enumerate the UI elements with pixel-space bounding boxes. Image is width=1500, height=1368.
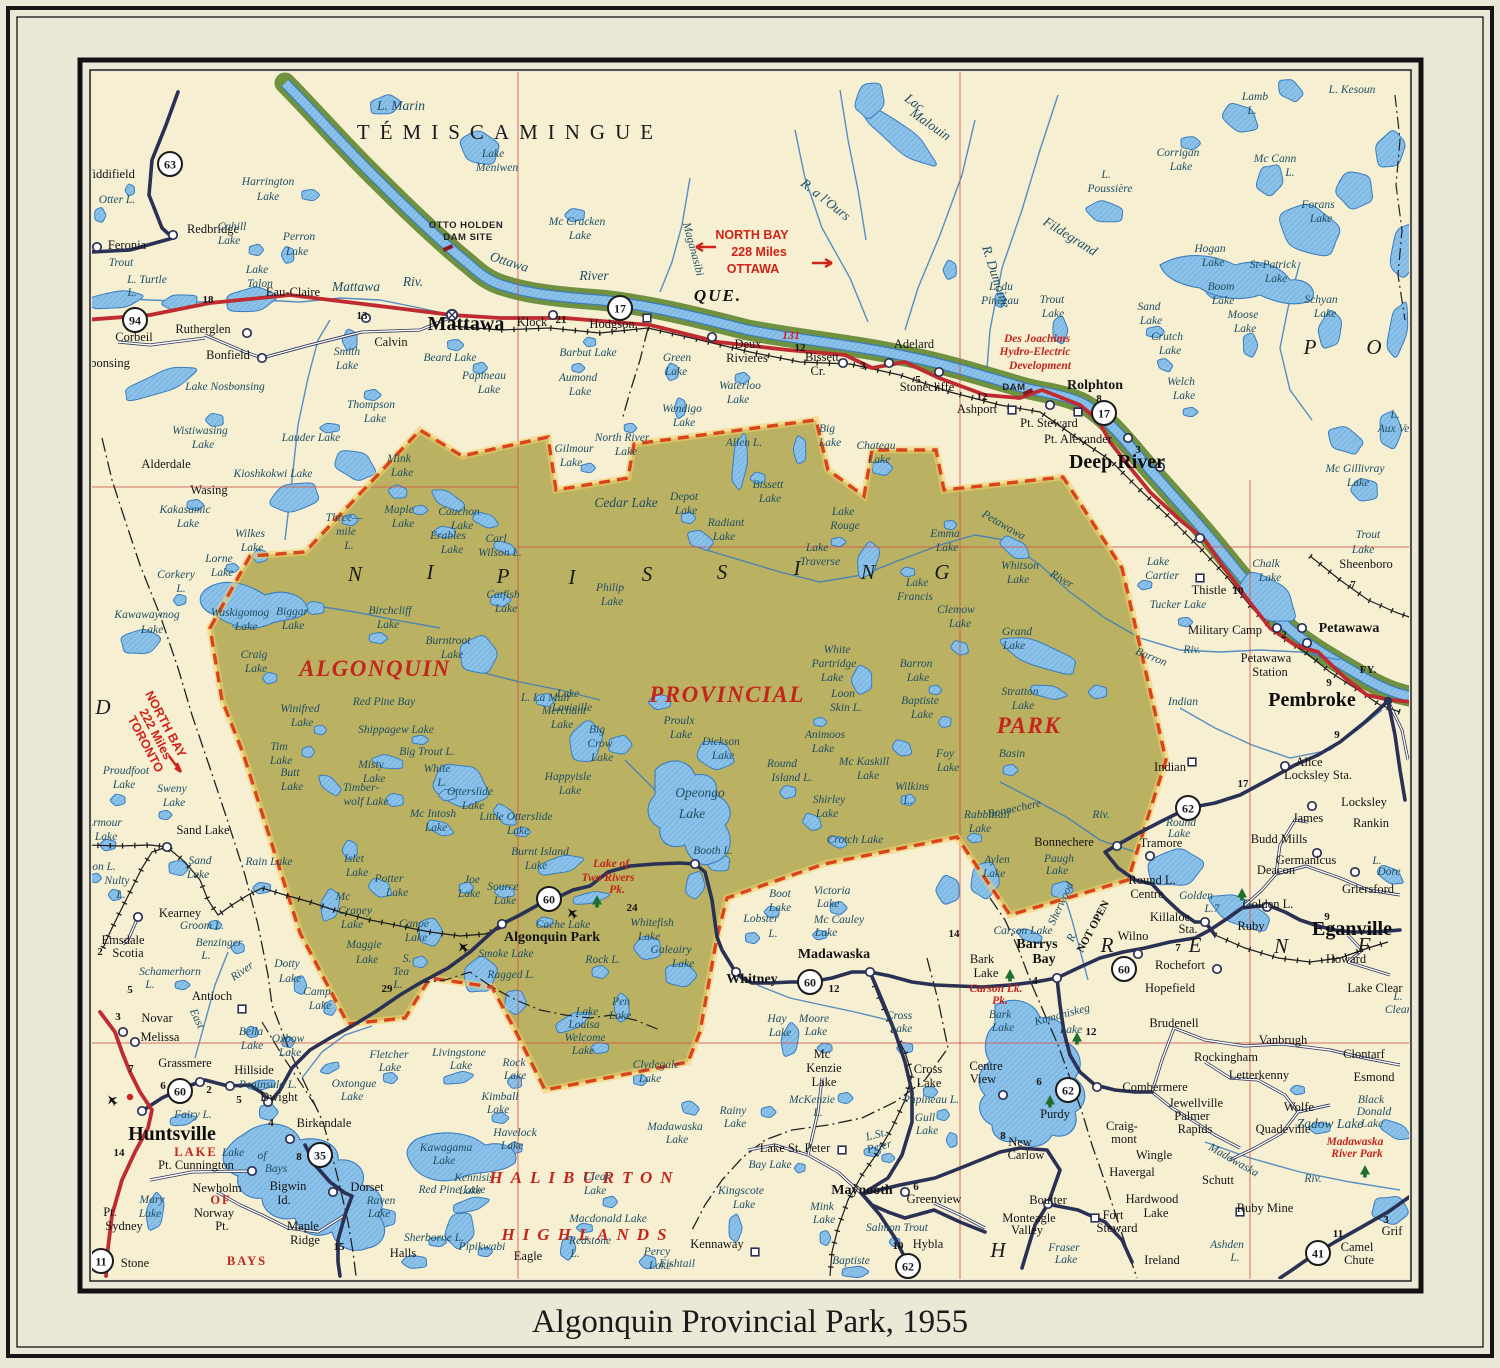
map-label: Lake bbox=[500, 1140, 523, 1152]
map-label: Oxbow bbox=[272, 1033, 305, 1045]
map-label: OTTO HOLDEN bbox=[429, 220, 503, 231]
map-label: 6 bbox=[160, 1080, 166, 1092]
map-label: Lake bbox=[768, 1027, 791, 1039]
map-label: 12 bbox=[829, 983, 841, 995]
map-label: Feronia bbox=[108, 238, 147, 252]
map-label: 14 bbox=[114, 1147, 126, 1159]
map-label: LAKE bbox=[174, 1145, 217, 1159]
map-label: Fairy L. bbox=[173, 1109, 212, 1121]
map-label: Tim bbox=[270, 741, 287, 753]
town-marker-icon bbox=[169, 231, 177, 239]
map-label: Boulter bbox=[1029, 1193, 1067, 1207]
map-label: Lake bbox=[671, 958, 694, 970]
town-marker-icon bbox=[1188, 758, 1196, 766]
map-label: Lake bbox=[1346, 477, 1369, 489]
map-label: Madawaska bbox=[798, 947, 870, 962]
map-label: Lake bbox=[376, 619, 399, 631]
map-label: Lake bbox=[559, 457, 582, 469]
map-label: Emma bbox=[929, 528, 960, 540]
map-label: Victoria bbox=[814, 885, 851, 897]
map-label: L. bbox=[569, 1248, 579, 1260]
map-label: Grand bbox=[1002, 626, 1032, 638]
map-label: Green bbox=[663, 352, 692, 364]
map-label: Lake bbox=[1011, 700, 1034, 712]
town-marker-icon bbox=[248, 1167, 256, 1175]
map-label: Lake bbox=[818, 437, 841, 449]
map-label: White bbox=[824, 644, 851, 656]
map-label: Algonquin Park bbox=[504, 930, 600, 945]
map-label: Stratton bbox=[1001, 686, 1038, 698]
map-label: 2 bbox=[97, 946, 103, 958]
map-label: 13 bbox=[357, 310, 369, 322]
map-label: Valley bbox=[1011, 1223, 1044, 1237]
map-label: Lobster bbox=[742, 913, 779, 925]
map-label: Lake St. Peter bbox=[760, 1141, 831, 1155]
map-label: Shippagew Lake bbox=[358, 724, 434, 736]
map-label: Lake bbox=[1054, 1254, 1077, 1266]
map-label: Station bbox=[1252, 665, 1288, 679]
map-label: BAYS bbox=[227, 1254, 267, 1268]
town-marker-icon bbox=[1093, 1083, 1101, 1091]
map-label: Sand bbox=[1138, 301, 1161, 313]
town-marker-icon bbox=[999, 1091, 1007, 1099]
map-label: Greenview bbox=[907, 1192, 962, 1206]
map-label: Lake bbox=[112, 779, 135, 791]
map-label: Lake bbox=[608, 1010, 631, 1022]
map-label: Lake bbox=[278, 1047, 301, 1059]
map-label: L. bbox=[1284, 167, 1294, 179]
map-label: Hillside bbox=[234, 1063, 274, 1077]
map-label: Mattawa bbox=[331, 279, 380, 294]
map-label: Maple bbox=[287, 1219, 319, 1233]
map-label: Lake bbox=[256, 191, 279, 203]
map-label: Calvin bbox=[374, 335, 408, 349]
map-label: Riv. bbox=[1182, 644, 1200, 656]
town-marker-icon bbox=[119, 1028, 127, 1036]
map-label: Butt bbox=[280, 767, 300, 779]
map-label: 2 bbox=[1281, 629, 1287, 641]
map-label: Ashden bbox=[1209, 1239, 1244, 1251]
map-label: Rankin bbox=[1353, 816, 1390, 830]
map-label: Salmon Trout bbox=[866, 1222, 929, 1234]
map-label: Galeairy bbox=[651, 944, 693, 956]
map-label: 7 bbox=[1175, 942, 1181, 954]
map-label: 12 bbox=[1086, 1026, 1098, 1038]
map-label: Locksley Sta. bbox=[1284, 768, 1352, 782]
svg-text:94: 94 bbox=[129, 314, 141, 328]
map-label: Lake bbox=[1211, 295, 1234, 307]
map-label: Barron bbox=[900, 658, 933, 670]
map-label: DAM SITE bbox=[443, 232, 492, 243]
map-label: Military Camp bbox=[1188, 623, 1262, 637]
town-marker-icon bbox=[238, 1005, 246, 1013]
map-label: Lake bbox=[968, 823, 991, 835]
map-label: Big bbox=[589, 724, 605, 736]
map-label: Rock L. bbox=[584, 954, 620, 966]
map-label: Lake bbox=[385, 887, 408, 899]
map-label: Lake bbox=[590, 752, 613, 764]
map-label: Waskigomog bbox=[211, 607, 270, 619]
map-label: Lake bbox=[906, 672, 929, 684]
map-label: Kennaway bbox=[690, 1237, 744, 1251]
svg-text:60: 60 bbox=[1118, 963, 1130, 977]
town-marker-icon bbox=[866, 968, 874, 976]
map-label: Lake bbox=[936, 762, 959, 774]
map-label: Lake bbox=[568, 230, 591, 242]
map-label: Palmer bbox=[1174, 1109, 1210, 1123]
map-label: Lake bbox=[363, 413, 386, 425]
map-label: Lake bbox=[285, 246, 308, 258]
map-label: 9 bbox=[1334, 729, 1340, 741]
map-label: Lake bbox=[1201, 257, 1224, 269]
map-label: Lake bbox=[1006, 574, 1029, 586]
map-label: Lake bbox=[186, 869, 209, 881]
map-label: Cahill bbox=[218, 221, 247, 233]
map-label: Baptiste bbox=[832, 1255, 870, 1267]
map-label: L. bbox=[436, 777, 446, 789]
map-label: Lake bbox=[1233, 323, 1256, 335]
route-shield: 94 bbox=[123, 308, 147, 332]
map-label: NORTH BAY bbox=[715, 228, 789, 242]
map-label: Lake of bbox=[592, 858, 630, 870]
map-label: Klock bbox=[517, 315, 548, 329]
map-label: OF bbox=[210, 1193, 231, 1207]
map-label: OTTAWA bbox=[727, 262, 780, 276]
town-marker-icon bbox=[163, 843, 171, 851]
map-label: Lake bbox=[1139, 315, 1162, 327]
map-label: 14 bbox=[949, 928, 961, 940]
map-label: Lake bbox=[815, 808, 838, 820]
map-label: Ridge bbox=[290, 1233, 320, 1247]
map-label: Lake bbox=[831, 506, 854, 518]
map-label: Centre bbox=[1130, 887, 1164, 901]
map-caption: Algonquin Provincial Park, 1955 bbox=[0, 1304, 1500, 1341]
map-label: Grif bbox=[1382, 1224, 1404, 1238]
map-label: Lake bbox=[558, 785, 581, 797]
map-label: 9 bbox=[1326, 677, 1332, 689]
map-label: Fraser bbox=[1047, 1242, 1080, 1254]
map-label: Lake bbox=[335, 360, 358, 372]
map-label: Redstone bbox=[568, 1235, 611, 1247]
map-label: Lake bbox=[614, 446, 637, 458]
map-label: Lake bbox=[440, 649, 463, 661]
map-label: Pt. bbox=[215, 1219, 229, 1233]
map-label: Maggie bbox=[345, 939, 381, 951]
map-label: Lake bbox=[477, 384, 500, 396]
map-label: Schamerhorn bbox=[139, 966, 201, 978]
map-label: 5 bbox=[127, 984, 133, 996]
map-label: 228 Miles bbox=[731, 245, 787, 259]
map-label: Bissett bbox=[805, 350, 840, 364]
town-marker-icon bbox=[93, 243, 101, 251]
town-marker-icon bbox=[243, 329, 251, 337]
map-label: Papineau bbox=[461, 370, 506, 382]
map-label: Havelock bbox=[492, 1127, 537, 1139]
map-label: Depot bbox=[669, 491, 699, 503]
map-label: L. du bbox=[988, 281, 1013, 293]
map-label: Golden bbox=[1179, 890, 1213, 902]
map-label: Round bbox=[766, 758, 797, 770]
map-label: Carson Lake bbox=[993, 925, 1052, 937]
map-label: Winifred bbox=[280, 703, 319, 715]
map-label: Locksley bbox=[1341, 795, 1388, 809]
map-label: Lake bbox=[575, 1006, 598, 1018]
svg-text:17: 17 bbox=[614, 302, 626, 316]
map-label: Scotia bbox=[112, 946, 144, 960]
map-label: Booth L. bbox=[693, 845, 733, 857]
map-label: Purdy bbox=[1040, 1107, 1071, 1121]
town-marker-icon bbox=[1113, 842, 1121, 850]
map-label: Petawawa bbox=[1319, 621, 1380, 636]
map-label: Lorne bbox=[204, 553, 232, 565]
map-label: Lake bbox=[494, 603, 517, 615]
map-label: Lake bbox=[424, 822, 447, 834]
map-label: Lake bbox=[1309, 213, 1332, 225]
map-label: Lauder Lake bbox=[281, 432, 340, 444]
map-label: Hodgson bbox=[589, 317, 635, 331]
map-label: R bbox=[1100, 933, 1114, 957]
map-label: Riv. bbox=[1091, 809, 1109, 821]
map-label: Mc Gillivray bbox=[1324, 463, 1385, 475]
map-label: Sherborne L. bbox=[404, 1232, 464, 1244]
map-label: S bbox=[717, 560, 728, 584]
map-label: Groom L. bbox=[180, 920, 224, 932]
map-label: Lake bbox=[991, 1022, 1014, 1034]
map-label: Trout bbox=[1356, 529, 1381, 541]
map-label: Emsdale bbox=[101, 933, 144, 947]
map-label: L. bbox=[1392, 991, 1402, 1003]
map-label: Carlow bbox=[1008, 1148, 1045, 1162]
route-shield: 11 bbox=[89, 1249, 113, 1273]
map-label: Madawaska bbox=[1326, 1136, 1384, 1148]
map-label: Lake bbox=[461, 800, 484, 812]
map-label: Lake bbox=[600, 596, 623, 608]
map-label: PROVINCIAL bbox=[648, 682, 805, 707]
map-label: 29 bbox=[382, 983, 394, 995]
map-label: Ragged L. bbox=[486, 969, 534, 981]
map-label: McKenzie bbox=[788, 1094, 835, 1106]
map-label: Cr. bbox=[811, 364, 826, 378]
map-label: Corbeil bbox=[115, 330, 153, 344]
map-label: Whitefish bbox=[630, 917, 674, 929]
map-label: Waterloo bbox=[719, 380, 761, 392]
map-label: Mink bbox=[809, 1201, 835, 1213]
map-label: Misty bbox=[357, 759, 384, 771]
map-label: mile bbox=[336, 526, 356, 538]
map-label: Rochefort bbox=[1155, 958, 1206, 972]
map-label: Rutherglen bbox=[175, 322, 231, 336]
map-label: Cedar Lake bbox=[594, 495, 657, 510]
map-label: Chalk bbox=[1252, 558, 1280, 570]
map-label: Traverse bbox=[800, 556, 840, 568]
map-label: S. bbox=[403, 953, 412, 965]
map-label: Schyan bbox=[1304, 294, 1337, 306]
map-label: Poussière bbox=[1087, 183, 1133, 195]
map-label: Jewellville bbox=[1169, 1096, 1224, 1110]
map-label: Lake bbox=[571, 1045, 594, 1057]
map-label: L. bbox=[126, 287, 136, 299]
map-label: Combermere bbox=[1122, 1080, 1188, 1094]
map-label: Craig- bbox=[1106, 1119, 1138, 1133]
town-marker-icon bbox=[935, 368, 943, 376]
map-label: Adelard bbox=[894, 337, 935, 351]
svg-text:60: 60 bbox=[543, 893, 555, 907]
map-label: wolf Lake bbox=[343, 796, 388, 808]
map-label: Lake bbox=[390, 467, 413, 479]
map-label: Lake bbox=[340, 919, 363, 931]
map-label: Mc Cracken bbox=[548, 216, 606, 228]
map-label: Pt. bbox=[103, 1205, 117, 1219]
map-label: Ireland bbox=[1144, 1253, 1180, 1267]
map-label: Lake bbox=[290, 717, 313, 729]
map-label: ALGONQUIN bbox=[297, 656, 451, 681]
map-label: L. Kesoun bbox=[1328, 84, 1376, 96]
map-label: River Park bbox=[1330, 1148, 1383, 1160]
map-label: Erables bbox=[429, 530, 466, 542]
map-label: Lake bbox=[245, 264, 268, 276]
map-label: Rolphton bbox=[1067, 378, 1123, 393]
map-label: New bbox=[1008, 1135, 1032, 1149]
map-label: Perron bbox=[282, 231, 315, 243]
map-label: Budd Mills bbox=[1251, 832, 1308, 846]
town-marker-icon bbox=[226, 1082, 234, 1090]
town-marker-icon bbox=[1146, 852, 1154, 860]
map-label: Golden L. bbox=[1243, 897, 1294, 911]
map-label: Percy bbox=[643, 1246, 671, 1258]
map-label: 6 bbox=[913, 1181, 919, 1193]
map-label: Steward bbox=[1097, 1221, 1139, 1235]
route-shield: 60 bbox=[537, 887, 561, 911]
town-marker-icon bbox=[131, 1038, 139, 1046]
map-label: L. Turtle bbox=[126, 274, 167, 286]
map-label: Letterkenny bbox=[1229, 1068, 1290, 1082]
map-label: Lamb bbox=[1241, 91, 1268, 103]
map-label: Wilkins bbox=[895, 781, 929, 793]
map-label: Lake bbox=[391, 518, 414, 530]
map-label: Potter bbox=[374, 873, 404, 885]
map-label: Burntroot bbox=[426, 635, 472, 647]
map-label: Gilmour bbox=[555, 443, 595, 455]
map-label: Red Pine Lake bbox=[417, 1184, 485, 1196]
map-label: Lake bbox=[726, 394, 749, 406]
map-label: Big bbox=[819, 423, 835, 435]
map-label: Pt. Steward bbox=[1020, 416, 1078, 430]
map-label: Lake bbox=[1002, 640, 1025, 652]
map-label: Sheenboro bbox=[1339, 557, 1392, 571]
map-label: Halls bbox=[390, 1246, 417, 1260]
map-label: Mc Cauley bbox=[813, 914, 865, 926]
svg-text:62: 62 bbox=[902, 1260, 914, 1274]
map-label: Wasing bbox=[190, 483, 228, 497]
route-shield: 60 bbox=[168, 1079, 192, 1103]
map-label: Pt. Cunnington bbox=[158, 1158, 234, 1172]
map-label: Harrington bbox=[241, 176, 295, 188]
map-label: Hogan bbox=[1193, 243, 1226, 255]
map-label: 3 bbox=[860, 360, 866, 372]
map-label: L. bbox=[902, 795, 912, 807]
map-label: Corkery bbox=[157, 569, 196, 581]
map-label: Smoke Lake bbox=[478, 948, 533, 960]
town-marker-icon bbox=[1384, 697, 1392, 705]
map-label: Wendigo bbox=[662, 403, 702, 415]
map-label: Island L. bbox=[771, 772, 813, 784]
map-label: Ruby Mine bbox=[1237, 1201, 1294, 1215]
map-label: Lake bbox=[378, 1062, 401, 1074]
map-label: Stone bbox=[121, 1256, 150, 1270]
map-label: Papineau L. bbox=[902, 1094, 959, 1106]
map-label: Mink bbox=[386, 453, 412, 465]
map-label: Dotty bbox=[273, 958, 300, 970]
map-label: Lake bbox=[672, 417, 695, 429]
map-label: Brudenell bbox=[1149, 1016, 1199, 1030]
map-label: Cross bbox=[886, 1010, 913, 1022]
map-label: Lake bbox=[889, 1023, 912, 1035]
map-label: Lake bbox=[648, 1260, 671, 1272]
town-marker-icon bbox=[1201, 918, 1209, 926]
map-label: Dorset bbox=[350, 1180, 384, 1194]
svg-text:62: 62 bbox=[1062, 1084, 1074, 1098]
map-label: Boom bbox=[1208, 281, 1235, 293]
map-label: Happyisle bbox=[544, 771, 592, 783]
town-marker-icon bbox=[286, 1135, 294, 1143]
map-label: I bbox=[568, 565, 577, 589]
map-label: Lake bbox=[210, 567, 233, 579]
town-marker-icon bbox=[839, 359, 847, 367]
map-label: Wolfe bbox=[1284, 1100, 1315, 1114]
map-label: 4 bbox=[1032, 975, 1038, 987]
map-label: Mc bbox=[335, 891, 351, 903]
svg-text:62: 62 bbox=[1182, 802, 1194, 816]
map-label: Bays bbox=[265, 1163, 288, 1175]
map-label: Hay bbox=[766, 1013, 787, 1025]
map-label: Lake bbox=[550, 719, 573, 731]
map-label: Maynooth bbox=[831, 1183, 893, 1198]
map-label: Merchant bbox=[541, 705, 587, 717]
map-label: North River bbox=[594, 432, 650, 444]
map-label: Lake bbox=[191, 439, 214, 451]
map-label: Lake bbox=[664, 366, 687, 378]
map-label: Trout bbox=[109, 257, 134, 269]
route-shield: 60 bbox=[798, 970, 822, 994]
map-label: Craig bbox=[241, 649, 268, 661]
map-label: Stonecliffe bbox=[900, 380, 955, 394]
town-marker-icon bbox=[708, 333, 716, 341]
map-label: Lake bbox=[355, 954, 378, 966]
map-label: Wistiwasing bbox=[172, 425, 228, 437]
map-label: N bbox=[860, 560, 876, 584]
map-label: Lake bbox=[280, 781, 303, 793]
map-label: H bbox=[989, 1238, 1007, 1262]
map-label: Dwight bbox=[260, 1090, 298, 1104]
map-label: 3 bbox=[115, 1011, 121, 1023]
map-label: Kearney bbox=[159, 906, 202, 920]
town-marker-icon bbox=[751, 1248, 759, 1256]
map-label: Hopefield bbox=[1145, 981, 1196, 995]
map-label: Pinceau bbox=[980, 295, 1019, 307]
map-label: 11 bbox=[1333, 1228, 1343, 1240]
map-label: Raven bbox=[366, 1195, 396, 1207]
map-label: Hydro-Electric bbox=[999, 346, 1071, 358]
map-label: Lake bbox=[568, 386, 591, 398]
map-label: Deux bbox=[734, 337, 762, 351]
map-label: Round L. bbox=[1128, 873, 1175, 887]
map-label: Bissett bbox=[753, 479, 784, 491]
map-label: 6 bbox=[1036, 1076, 1042, 1088]
map-label: Mc Cann bbox=[1253, 153, 1297, 165]
map-label: Bonnechere bbox=[1034, 835, 1094, 849]
map-label: Trout bbox=[1040, 294, 1065, 306]
map-label: 5 bbox=[236, 1094, 242, 1106]
